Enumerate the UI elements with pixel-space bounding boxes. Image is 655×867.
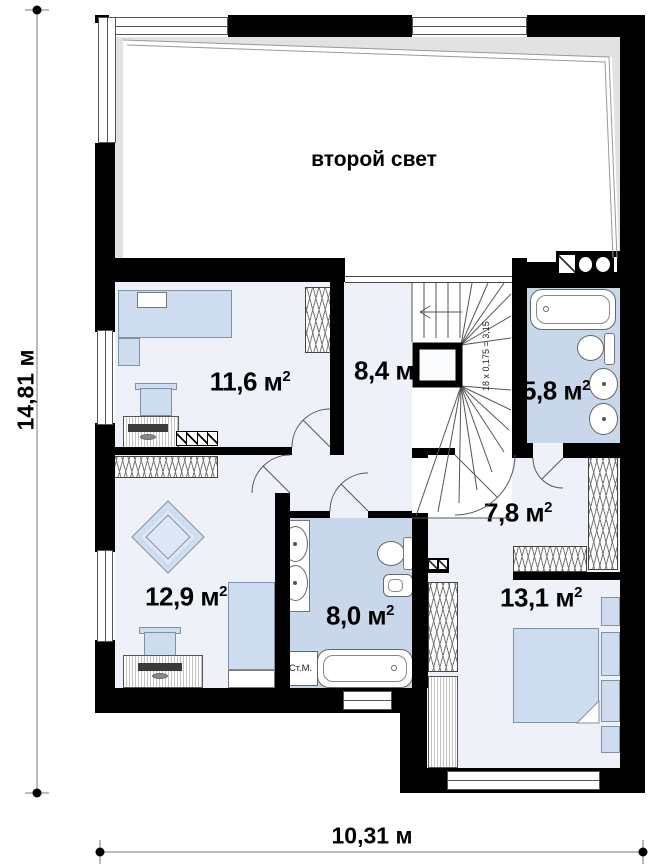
wall bbox=[412, 513, 428, 688]
floor-plan: Ст.М. bbox=[0, 0, 655, 867]
room-area-label: 11,6 м2 bbox=[210, 367, 290, 398]
vent-hatch-icon bbox=[559, 255, 575, 273]
wall bbox=[512, 258, 527, 458]
chimney-vent-block bbox=[556, 251, 620, 277]
bed-foot bbox=[228, 670, 275, 688]
pillow bbox=[137, 292, 167, 308]
wardrobe bbox=[513, 546, 587, 572]
radiator bbox=[176, 431, 218, 446]
nightstand bbox=[118, 338, 140, 366]
wall bbox=[620, 15, 645, 793]
wardrobe bbox=[428, 582, 458, 672]
wall bbox=[115, 258, 345, 282]
wall bbox=[412, 448, 428, 458]
wardrobe bbox=[108, 456, 218, 478]
room-area-label: 5,8 м2 bbox=[522, 376, 590, 407]
bed-single bbox=[118, 290, 232, 338]
wall bbox=[228, 15, 412, 37]
wall bbox=[563, 443, 620, 458]
room-area-label: 12,9 м2 bbox=[145, 582, 227, 613]
wardrobe bbox=[305, 287, 333, 353]
desk bbox=[123, 655, 203, 688]
pillow bbox=[601, 680, 620, 722]
monitor bbox=[138, 663, 182, 671]
wall bbox=[330, 447, 344, 455]
wall bbox=[527, 443, 533, 458]
dimension-height-label: 14,81 м bbox=[13, 350, 40, 431]
flue-icon bbox=[596, 257, 610, 272]
wall bbox=[513, 572, 620, 580]
wardrobe bbox=[588, 457, 618, 570]
window bbox=[98, 17, 228, 35]
desk-chair bbox=[140, 388, 172, 416]
toilet-bowl bbox=[377, 541, 405, 566]
flue-icon bbox=[579, 257, 593, 272]
wall bbox=[115, 447, 292, 455]
room-area-label: 7,8 м2 bbox=[484, 498, 552, 529]
window bbox=[412, 17, 527, 35]
window bbox=[98, 17, 116, 143]
room-area-label: 8,4 м2 bbox=[354, 356, 422, 387]
nightstand bbox=[601, 726, 620, 753]
vent-block bbox=[427, 558, 449, 573]
wall bbox=[95, 143, 115, 332]
wall bbox=[428, 448, 455, 455]
bed-single bbox=[228, 582, 275, 670]
washing-machine-label: Ст.М. bbox=[289, 663, 312, 674]
wall bbox=[290, 511, 330, 518]
nightstand bbox=[601, 597, 620, 626]
stairwell-floor bbox=[412, 283, 512, 518]
wall bbox=[330, 282, 344, 447]
window bbox=[447, 771, 600, 790]
bed-double bbox=[513, 628, 599, 723]
wall bbox=[95, 423, 115, 552]
room-area-label: 8,0 м2 bbox=[326, 601, 394, 632]
window bbox=[343, 691, 392, 710]
window bbox=[97, 330, 113, 425]
bidet bbox=[383, 574, 413, 597]
pillow bbox=[601, 632, 620, 676]
desk bbox=[123, 416, 179, 448]
wall bbox=[275, 493, 290, 688]
keyboard bbox=[152, 673, 168, 679]
toilet-bowl bbox=[577, 335, 604, 361]
window bbox=[97, 550, 113, 642]
toilet-tank bbox=[604, 333, 615, 365]
wardrobe-wood bbox=[428, 676, 458, 768]
monitor bbox=[128, 424, 168, 432]
second-light-label: второй свет bbox=[311, 148, 437, 172]
stair-railing bbox=[345, 276, 512, 283]
bathtub bbox=[317, 649, 413, 688]
wall bbox=[400, 688, 427, 793]
vent-hatch-icon bbox=[439, 560, 447, 569]
dimension-width-label: 10,31 м bbox=[332, 823, 413, 850]
keyboard bbox=[140, 434, 156, 440]
vent-hatch-icon bbox=[429, 560, 437, 569]
wall bbox=[368, 511, 412, 518]
room-area-label: 13,1 м2 bbox=[500, 583, 582, 614]
second-light-void-strip bbox=[345, 258, 512, 278]
